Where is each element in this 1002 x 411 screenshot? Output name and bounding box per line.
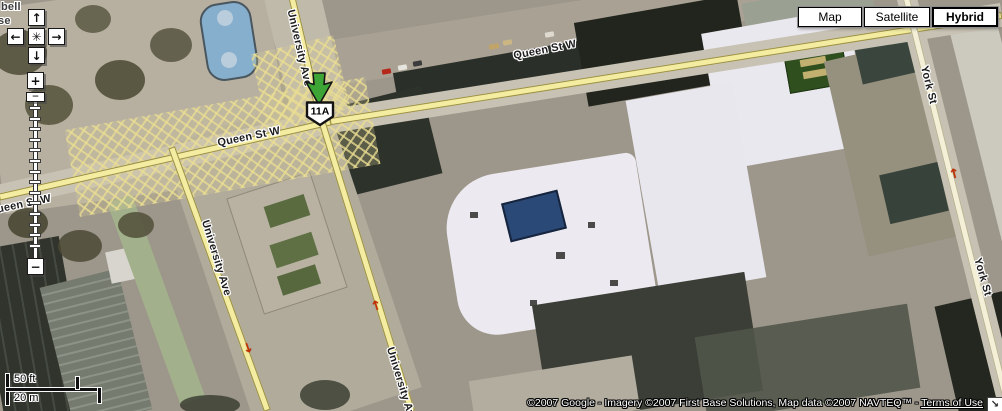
arrow-right-icon: →: [51, 31, 61, 43]
map-button-label: Map: [818, 10, 841, 24]
minus-icon: −: [30, 261, 40, 273]
tree-canopy: [150, 28, 192, 62]
map-type-hybrid-button[interactable]: Hybrid: [932, 7, 998, 27]
roof-debris: [610, 280, 618, 286]
zoom-slider-tick: [29, 212, 41, 216]
roof-debris: [556, 252, 565, 259]
route-shield[interactable]: 11A: [305, 101, 335, 127]
zoom-slider-tick: [29, 191, 41, 195]
scale-feet-label: 50 ft: [14, 373, 35, 385]
hybrid-button-label: Hybrid: [946, 10, 984, 24]
tree-canopy: [58, 230, 102, 262]
recenter-icon: ✳: [31, 31, 41, 43]
pan-right-button[interactable]: →: [48, 28, 65, 45]
pan-down-button[interactable]: ↓: [28, 47, 45, 64]
zoom-slider-tick: [29, 159, 41, 163]
poi-label-fragment: se: [0, 15, 11, 27]
tree-canopy: [118, 212, 154, 238]
zoom-slider-tick: [29, 244, 41, 248]
tree-canopy: [8, 208, 48, 238]
attribution: ©2007 Google - Imagery ©2007 First Base …: [527, 397, 983, 409]
map-type-map-button[interactable]: Map: [798, 7, 862, 27]
tree-canopy: [75, 5, 111, 33]
pan-left-button[interactable]: ←: [7, 28, 24, 45]
zoom-slider-handle[interactable]: −: [26, 92, 45, 102]
route-shield-label: 11A: [311, 106, 330, 118]
resize-corner-button[interactable]: ↘: [987, 397, 1002, 411]
zoom-slider-tick: [29, 106, 41, 110]
zoom-slider-tick: [29, 138, 41, 142]
scale-bar-baseline: [6, 388, 101, 391]
slider-handle-icon: −: [32, 92, 40, 102]
pan-up-button[interactable]: ↑: [28, 9, 45, 26]
tree-canopy: [95, 60, 145, 100]
roof-debris: [588, 222, 595, 228]
resize-arrow-icon: ↘: [991, 399, 999, 410]
zoom-slider-tick: [29, 117, 41, 121]
tree-canopy: [180, 395, 240, 411]
arrow-down-icon: ↓: [31, 50, 41, 62]
satellite-button-label: Satellite: [876, 10, 919, 24]
zoom-slider-tick: [29, 127, 41, 131]
recenter-button[interactable]: ✳: [28, 28, 45, 45]
tree-canopy: [300, 380, 350, 410]
zoom-slider-tick: [29, 180, 41, 184]
scale-meters-label: 20 m: [14, 392, 38, 404]
zoom-slider-tick: [29, 223, 41, 227]
scale-bar-meters-tick: [98, 388, 101, 403]
poi-label-fragment: bell: [1, 1, 21, 13]
zoom-slider-tick: [29, 170, 41, 174]
arrow-up-icon: ↑: [31, 12, 41, 24]
roof-debris: [470, 212, 478, 218]
zoom-in-button[interactable]: +: [27, 72, 44, 89]
zoom-out-button[interactable]: −: [27, 258, 44, 275]
zoom-slider-tick: [29, 201, 41, 205]
map-canvas[interactable]: ↑ ↑ ↑ Queen St W Queen St W Queen St W U…: [0, 0, 1002, 411]
zoom-slider-tick: [29, 148, 41, 152]
attribution-text: ©2007 Google - Imagery ©2007 First Base …: [527, 397, 921, 409]
arrow-left-icon: ←: [10, 31, 20, 43]
map-type-satellite-button[interactable]: Satellite: [864, 7, 930, 27]
plus-icon: +: [30, 75, 40, 87]
scale-bar-feet-tick: [76, 377, 79, 389]
terms-of-use-link[interactable]: Terms of Use: [921, 397, 983, 409]
zoom-slider-tick: [29, 233, 41, 237]
